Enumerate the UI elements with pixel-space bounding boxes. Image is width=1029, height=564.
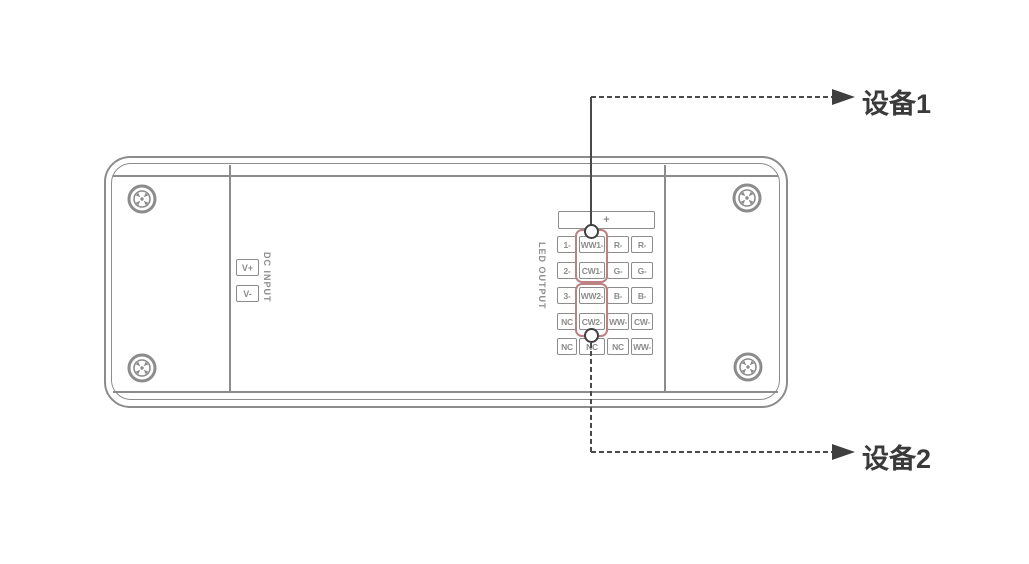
callout2-dashed-line bbox=[591, 451, 832, 453]
callout1-arrow-icon bbox=[832, 89, 855, 105]
terminal-cell-g: G- bbox=[607, 262, 629, 279]
device-inner-shell bbox=[111, 163, 780, 400]
screw-icon bbox=[729, 180, 765, 216]
terminal-cell-nc: NC bbox=[557, 338, 577, 355]
terminal-cell-3: 3- bbox=[557, 287, 577, 304]
faceplate-top-edge bbox=[113, 175, 778, 177]
terminal-cell-1: 1- bbox=[557, 236, 577, 253]
terminal-cell-2: 2- bbox=[557, 262, 577, 279]
callout2-vertical-dashed-line bbox=[590, 343, 592, 453]
faceplate-right-divider bbox=[664, 165, 666, 392]
connection-point-device1 bbox=[584, 224, 599, 239]
callout2-label: 设备2 bbox=[862, 437, 931, 476]
terminal-cell-b: B- bbox=[607, 287, 629, 304]
terminal-cell-cw: CW- bbox=[631, 313, 653, 330]
terminal-v-plus: V+ bbox=[236, 259, 259, 276]
terminal-v-minus: V- bbox=[236, 285, 259, 302]
terminal-common-plus: + bbox=[558, 211, 655, 229]
terminal-cell-ww: WW- bbox=[631, 338, 653, 355]
callout2-arrow-icon bbox=[832, 444, 855, 460]
faceplate-left-divider bbox=[229, 165, 231, 392]
dc-input-label: DC INPUT bbox=[262, 252, 272, 312]
callout1-dashed-line bbox=[591, 96, 832, 98]
connection-point-device2 bbox=[584, 328, 599, 343]
terminal-cell-b: B- bbox=[631, 287, 653, 304]
wiring-diagram: V+ V- DC INPUT LED OUTPUT + 1-WW1-R-R-2-… bbox=[0, 0, 1029, 564]
terminal-cell-nc: NC bbox=[607, 338, 629, 355]
terminal-cell-g: G- bbox=[631, 262, 653, 279]
terminal-cell-r: R- bbox=[631, 236, 653, 253]
faceplate-bottom-edge bbox=[113, 391, 778, 393]
led-output-label: LED OUTPUT bbox=[537, 242, 547, 316]
callout1-vertical-line bbox=[590, 97, 592, 226]
terminal-cell-nc: NC bbox=[557, 313, 577, 330]
terminal-cell-r: R- bbox=[607, 236, 629, 253]
screw-icon bbox=[124, 350, 160, 386]
screw-icon bbox=[730, 349, 766, 385]
terminal-cell-ww: WW- bbox=[607, 313, 629, 330]
callout1-label: 设备1 bbox=[862, 82, 931, 121]
screw-icon bbox=[124, 181, 160, 217]
